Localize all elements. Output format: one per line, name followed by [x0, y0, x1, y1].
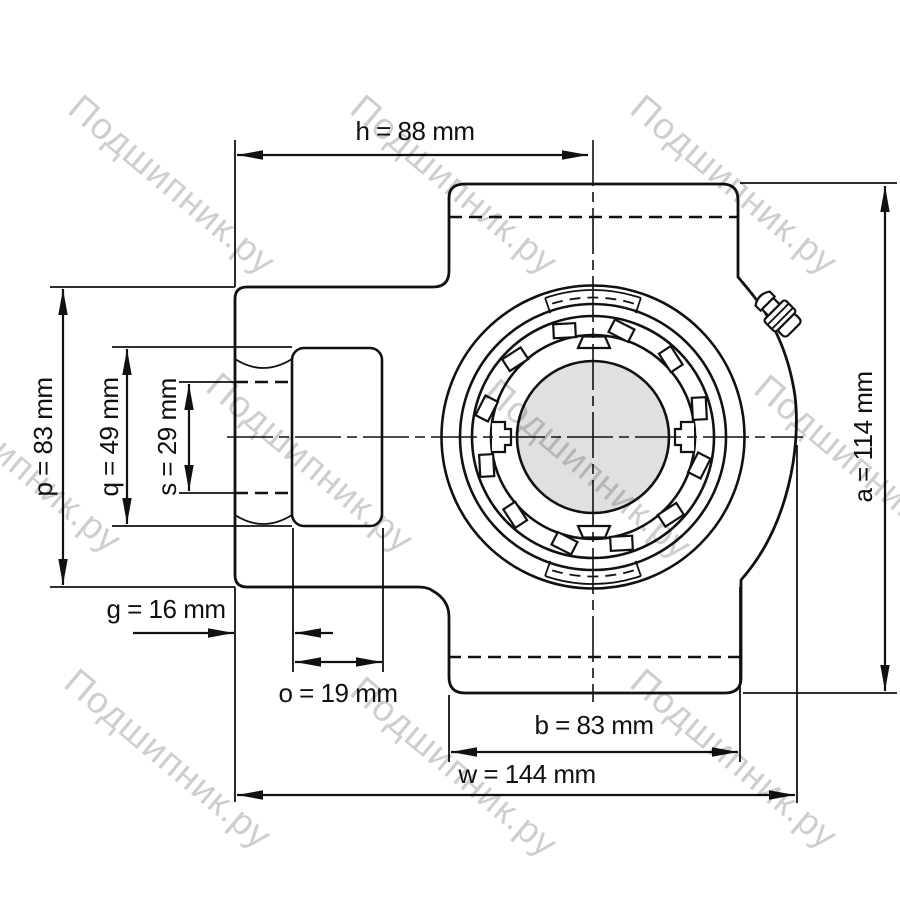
dimension-s-label: s = 29 mm: [152, 378, 182, 496]
technical-drawing-canvas: h = 88 mm p = 83 mm q = 49 mm s = 29 mm …: [0, 0, 900, 900]
bearing-unit-drawing: h = 88 mm p = 83 mm q = 49 mm s = 29 mm …: [0, 0, 900, 900]
watermark-text: Подшипник.ру: [61, 87, 284, 283]
dimension-b-label: b = 83 mm: [534, 710, 653, 740]
keyway-bottom: [578, 526, 610, 538]
dimension-q-label: q = 49 mm: [94, 377, 124, 496]
keyway-top: [578, 337, 610, 349]
watermark-text: Подшипник.ру: [57, 661, 280, 857]
dimension-g-label: g = 16 mm: [106, 594, 225, 624]
